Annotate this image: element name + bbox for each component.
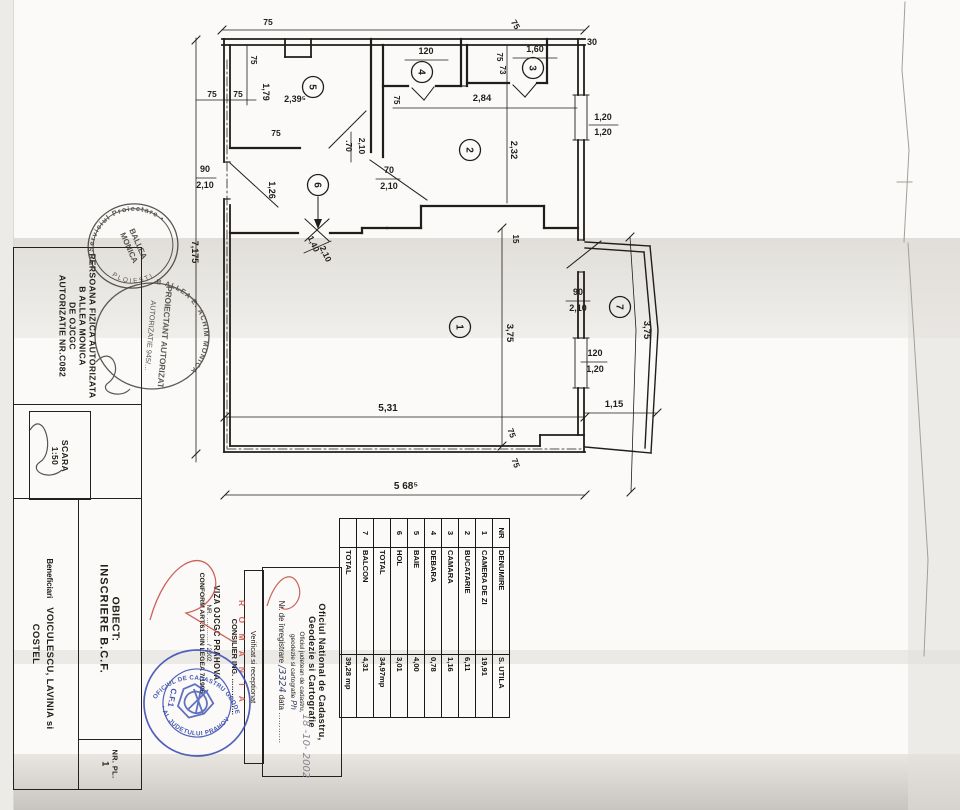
plan-line bbox=[585, 242, 650, 246]
plan-line bbox=[585, 447, 651, 453]
plan-line bbox=[498, 224, 506, 232]
visa-line1: VIZA OJCGC PRAHOVA bbox=[213, 585, 222, 680]
room-number: 2 bbox=[464, 147, 475, 153]
plan-line bbox=[305, 219, 329, 241]
dimension-label: 3,75 bbox=[504, 324, 515, 343]
dimension-label: 2,32 bbox=[508, 141, 519, 160]
beneficiary-names: VOICULESCU, LAVINIA si bbox=[46, 607, 57, 729]
dimension-label: 2,10 bbox=[569, 303, 587, 313]
room-number-bubble bbox=[303, 77, 324, 98]
room-number: 4 bbox=[416, 69, 427, 75]
room-area-table: NRDENUMIRES. UTILA1CAMERA DE ZI19,912BUC… bbox=[345, 523, 505, 713]
room-number-bubble bbox=[450, 317, 471, 338]
table-cell: 0,78 bbox=[425, 655, 442, 718]
dimension-label: 2,10 bbox=[380, 181, 398, 191]
beneficiary-label: Beneficiari bbox=[46, 558, 55, 598]
table-cell: 39,28 mp bbox=[340, 655, 357, 718]
plan-line bbox=[221, 413, 229, 421]
dimension-label: 75 bbox=[495, 53, 504, 62]
table-cell: 3 bbox=[442, 519, 459, 548]
dimension-label: 75 bbox=[233, 89, 243, 99]
dimension-label: 5 68⁵ bbox=[394, 481, 418, 492]
authorization-line: PERSOANA FIZICA AUTORIZATA bbox=[88, 253, 98, 398]
verified-box: Verificat si receptionat bbox=[244, 570, 264, 764]
entrance-arrow-head bbox=[314, 219, 322, 229]
scale-label: SCARA bbox=[60, 439, 70, 471]
visa-column: VIZA OJCGC PRAHOVA NR. ………… / 2002 CONFO… bbox=[194, 558, 226, 708]
table-cell: 1 bbox=[476, 519, 493, 548]
plan-line bbox=[221, 491, 229, 499]
table-cell: BAIE bbox=[408, 548, 425, 655]
plan-line bbox=[218, 26, 226, 34]
table-cell: 6,11 bbox=[459, 655, 476, 718]
room-number: 6 bbox=[312, 182, 323, 188]
plan-line bbox=[304, 241, 331, 253]
scale-cell: SCARA 1:50 bbox=[29, 411, 91, 500]
stamp2-line2: AUTORIZATIE 945/… bbox=[143, 300, 158, 372]
plan-line bbox=[585, 248, 644, 252]
dimension-label: 2,39⁵ bbox=[284, 94, 306, 104]
plan-line bbox=[627, 488, 635, 496]
table-cell: CAMARA bbox=[442, 548, 459, 655]
title-block: PERSOANA FIZICA AUTORIZATA B ALLEA MONIC… bbox=[13, 247, 142, 790]
floor-plan-layer: 75751201,603073751,792,39⁵757575752,8475… bbox=[190, 2, 928, 656]
table-cell: DENUMIRE bbox=[493, 548, 510, 655]
table-header-row: NRDENUMIRES. UTILA bbox=[493, 519, 510, 718]
svg-text:B ALLEA E. ACHIM MONICA: B ALLEA E. ACHIM MONICA bbox=[156, 279, 209, 375]
dimension-label: 1,60 bbox=[526, 44, 544, 54]
blue-stamp-inner-text: C.F.1 bbox=[166, 688, 179, 709]
room-number: 1 bbox=[454, 324, 465, 330]
dimension-label: 1,40 bbox=[306, 234, 322, 253]
table-cell: BALCON bbox=[357, 548, 374, 655]
dimension-label: 1,20 bbox=[586, 364, 604, 374]
plan-line bbox=[498, 442, 506, 450]
title-block-divider bbox=[14, 404, 141, 405]
dimension-label: 15 bbox=[511, 235, 520, 244]
paper-right-shade bbox=[908, 240, 960, 810]
table-row: 7BALCON4,31 bbox=[357, 519, 374, 718]
plan-line bbox=[650, 246, 658, 453]
registry-office-line1: Oficiul National de Cadastru, bbox=[318, 603, 328, 740]
plan-line bbox=[329, 111, 366, 148]
dimension-label: 1,20 bbox=[594, 127, 612, 137]
room-number: 7 bbox=[614, 304, 625, 310]
plan-line bbox=[305, 219, 329, 241]
dimension-label: 120 bbox=[418, 46, 433, 56]
room-number-bubble bbox=[610, 297, 631, 318]
table-row: TOTAL39,28 mp bbox=[340, 519, 357, 718]
scale-value: 1:50 bbox=[50, 446, 60, 465]
authorization-line: B ALLEA MONICA bbox=[78, 286, 88, 365]
table-cell: 6 bbox=[391, 519, 408, 548]
consilier-column: CONSILIER ING. …………… bbox=[226, 572, 244, 762]
table-row: 2BUCATARIE6,11 bbox=[459, 519, 476, 718]
consilier-label: CONSILIER ING. …………… bbox=[226, 572, 244, 762]
plan-line bbox=[581, 413, 589, 421]
dimension-label: 70 bbox=[384, 165, 394, 175]
dimension-label: 7,175 bbox=[190, 241, 200, 264]
plan-line bbox=[525, 84, 536, 97]
scan-shade-band-bottom bbox=[0, 754, 960, 810]
dimension-label: 75 bbox=[509, 18, 523, 31]
dimension-label: 75 bbox=[510, 457, 523, 470]
table-cell bbox=[374, 519, 391, 548]
paper-edge-line bbox=[908, 243, 928, 656]
dimension-label: 1,20 bbox=[594, 112, 612, 122]
object-value: INSCRIERE B.C.F. bbox=[98, 564, 110, 674]
table-cell: DEBARA bbox=[425, 548, 442, 655]
plan-line bbox=[230, 163, 278, 207]
table-cell: 1,16 bbox=[442, 655, 459, 718]
room-number-bubble bbox=[523, 58, 544, 79]
table-cell: CAMERA DE ZI bbox=[476, 548, 493, 655]
scan-shade-band-middle bbox=[0, 238, 960, 338]
table-cell: 34,97mp bbox=[374, 655, 391, 718]
table-cell: 2 bbox=[459, 519, 476, 548]
table-cell: TOTAL bbox=[340, 548, 357, 655]
authorization-line: AUTORIZATIE NR.C082 bbox=[58, 275, 68, 377]
room-area-table-grid: NRDENUMIRES. UTILA1CAMERA DE ZI19,912BUC… bbox=[340, 518, 511, 718]
dimension-label: 120 bbox=[587, 348, 602, 358]
beneficiary-names-2: COSTEL bbox=[32, 623, 43, 663]
plan-line bbox=[653, 409, 661, 417]
dimension-label: 30 bbox=[587, 37, 597, 47]
dimension-label: 3,75 bbox=[641, 321, 652, 340]
table-cell: TOTAL bbox=[374, 548, 391, 655]
dimension-label: 75 bbox=[263, 17, 273, 27]
handwritten-reg-number: /3324 bbox=[277, 665, 288, 692]
table-row: 3CAMARA1,16 bbox=[442, 519, 459, 718]
table-row: 4DEBARA0,78 bbox=[425, 519, 442, 718]
authorization-line: DE OJCGC bbox=[68, 302, 78, 350]
dimension-label: 73 bbox=[498, 66, 507, 75]
table-cell: 4 bbox=[425, 519, 442, 548]
paper-edge-line bbox=[902, 2, 909, 242]
dimension-label: .70 bbox=[344, 140, 354, 152]
dimension-label: 75 bbox=[392, 96, 401, 105]
room-number: 5 bbox=[307, 84, 318, 90]
plan-line bbox=[424, 87, 434, 100]
visa-line2: NR. ………… / 2002 bbox=[206, 604, 213, 661]
dimension-label: 90 bbox=[200, 164, 210, 174]
dimension-label: 90 bbox=[573, 287, 583, 297]
table-cell: 4,31 bbox=[357, 655, 374, 718]
dimension-label: 75 bbox=[506, 427, 519, 440]
dimension-label: 1,79 bbox=[261, 83, 271, 101]
table-cell bbox=[340, 519, 357, 548]
dimension-label: 2,10 bbox=[357, 138, 367, 155]
plan-line bbox=[581, 26, 589, 34]
verified-label: Verificat si receptionat bbox=[245, 571, 263, 763]
handwritten-date: 18 -10- 2002 bbox=[296, 700, 316, 792]
table-cell: S. UTILA bbox=[493, 655, 510, 718]
dimension-label: 75 bbox=[271, 128, 281, 138]
table-row: TOTAL34,97mp bbox=[374, 519, 391, 718]
dimension-label: 2,10 bbox=[196, 180, 214, 190]
dimension-label: 75 bbox=[207, 89, 217, 99]
scanned-cadastral-document: { "title_block": { "authorization_lines"… bbox=[0, 0, 960, 810]
registration-number-line: Nr. de înregistrare /3324 data ………… bbox=[277, 601, 288, 744]
table-cell: BUCATARIE bbox=[459, 548, 476, 655]
plan-line bbox=[513, 85, 525, 97]
plate-value: 1 bbox=[100, 761, 110, 766]
room-number: 3 bbox=[527, 65, 538, 71]
plan-line bbox=[644, 252, 651, 448]
object-cell: OBIECT: INSCRIERE B.C.F. bbox=[78, 498, 141, 739]
table-row: 1CAMERA DE ZI19,91 bbox=[476, 519, 493, 718]
table-row: 5BAIE4,00 bbox=[408, 519, 425, 718]
table-cell: 3,01 bbox=[391, 655, 408, 718]
object-label: OBIECT: bbox=[110, 596, 122, 641]
stamp2-line1: PROIECTANT AUTORIZAT bbox=[156, 286, 175, 389]
plan-line bbox=[630, 237, 636, 492]
table-cell: 19,91 bbox=[476, 655, 493, 718]
room-number-bubble bbox=[460, 140, 481, 161]
table-row: 6HOL3,01 bbox=[391, 519, 408, 718]
beneficiary-cell: Beneficiari VOICULESCU, LAVINIA si COSTE… bbox=[14, 498, 78, 789]
stamp2-ring-text: B ALLEA E. ACHIM MONICA bbox=[156, 279, 209, 375]
plan-line bbox=[192, 450, 200, 458]
plan-line bbox=[412, 88, 424, 100]
table-cell: HOL bbox=[391, 548, 408, 655]
authorization-cell: PERSOANA FIZICA AUTORIZATA B ALLEA MONIC… bbox=[14, 248, 141, 404]
plan-line bbox=[192, 36, 200, 44]
dimension-label: 2,10 bbox=[318, 244, 334, 263]
plan-line bbox=[370, 160, 427, 200]
room-number-bubble bbox=[308, 175, 329, 196]
table-cell: 7 bbox=[357, 519, 374, 548]
dimension-label: 1,26 bbox=[267, 181, 277, 199]
plate-number-cell: NR. PL. 1 bbox=[78, 739, 141, 789]
registry-office-sub2: geodezie si cartografie Ph bbox=[290, 634, 299, 710]
dimension-label: 1,15 bbox=[605, 399, 624, 410]
room-number-bubble bbox=[412, 62, 433, 83]
plan-line bbox=[626, 233, 634, 241]
dimension-label: 2,84 bbox=[473, 93, 492, 104]
plan-line bbox=[581, 491, 589, 499]
paper-left-edge bbox=[0, 0, 14, 810]
plate-label: NR. PL. bbox=[110, 749, 119, 778]
dimension-label: 5,31 bbox=[378, 403, 398, 414]
table-cell: 4,00 bbox=[408, 655, 425, 718]
table-cell: NR bbox=[493, 519, 510, 548]
dimension-label: 75 bbox=[249, 56, 258, 65]
plan-line bbox=[567, 241, 601, 268]
table-cell: 5 bbox=[408, 519, 425, 548]
visa-line3: CONFORM ART.61 DIN LEGEA 7/1996 bbox=[199, 573, 206, 694]
